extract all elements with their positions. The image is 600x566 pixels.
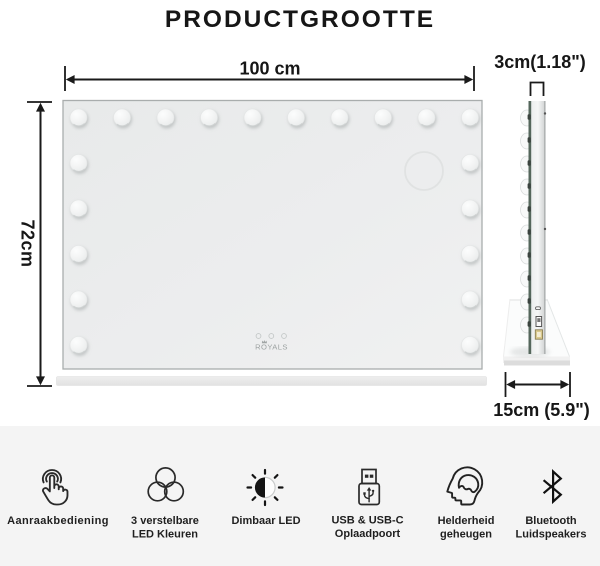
svg-text:Bluetooth: Bluetooth	[525, 515, 577, 527]
svg-text:Oplaadpoort: Oplaadpoort	[335, 528, 401, 540]
svg-text:Aanraakbediening: Aanraakbediening	[7, 515, 109, 527]
svg-text:USB & USB-C: USB & USB-C	[331, 515, 403, 527]
svg-text:100 cm: 100 cm	[239, 59, 300, 79]
svg-text:geheugen: geheugen	[440, 529, 492, 541]
svg-text:3cm(1.18"): 3cm(1.18")	[494, 52, 586, 72]
svg-text:PRODUCTGROOTTE: PRODUCTGROOTTE	[165, 6, 435, 33]
svg-text:72cm: 72cm	[18, 219, 38, 267]
svg-text:3 verstelbare: 3 verstelbare	[131, 515, 199, 527]
svg-text:LED Kleuren: LED Kleuren	[132, 529, 198, 541]
svg-text:ROYALS: ROYALS	[255, 343, 288, 352]
svg-text:Dimbaar LED: Dimbaar LED	[231, 515, 300, 527]
svg-text:Luidspeakers: Luidspeakers	[516, 529, 587, 541]
svg-text:15cm (5.9"): 15cm (5.9")	[493, 400, 590, 420]
svg-text:Helderheid: Helderheid	[438, 515, 495, 527]
